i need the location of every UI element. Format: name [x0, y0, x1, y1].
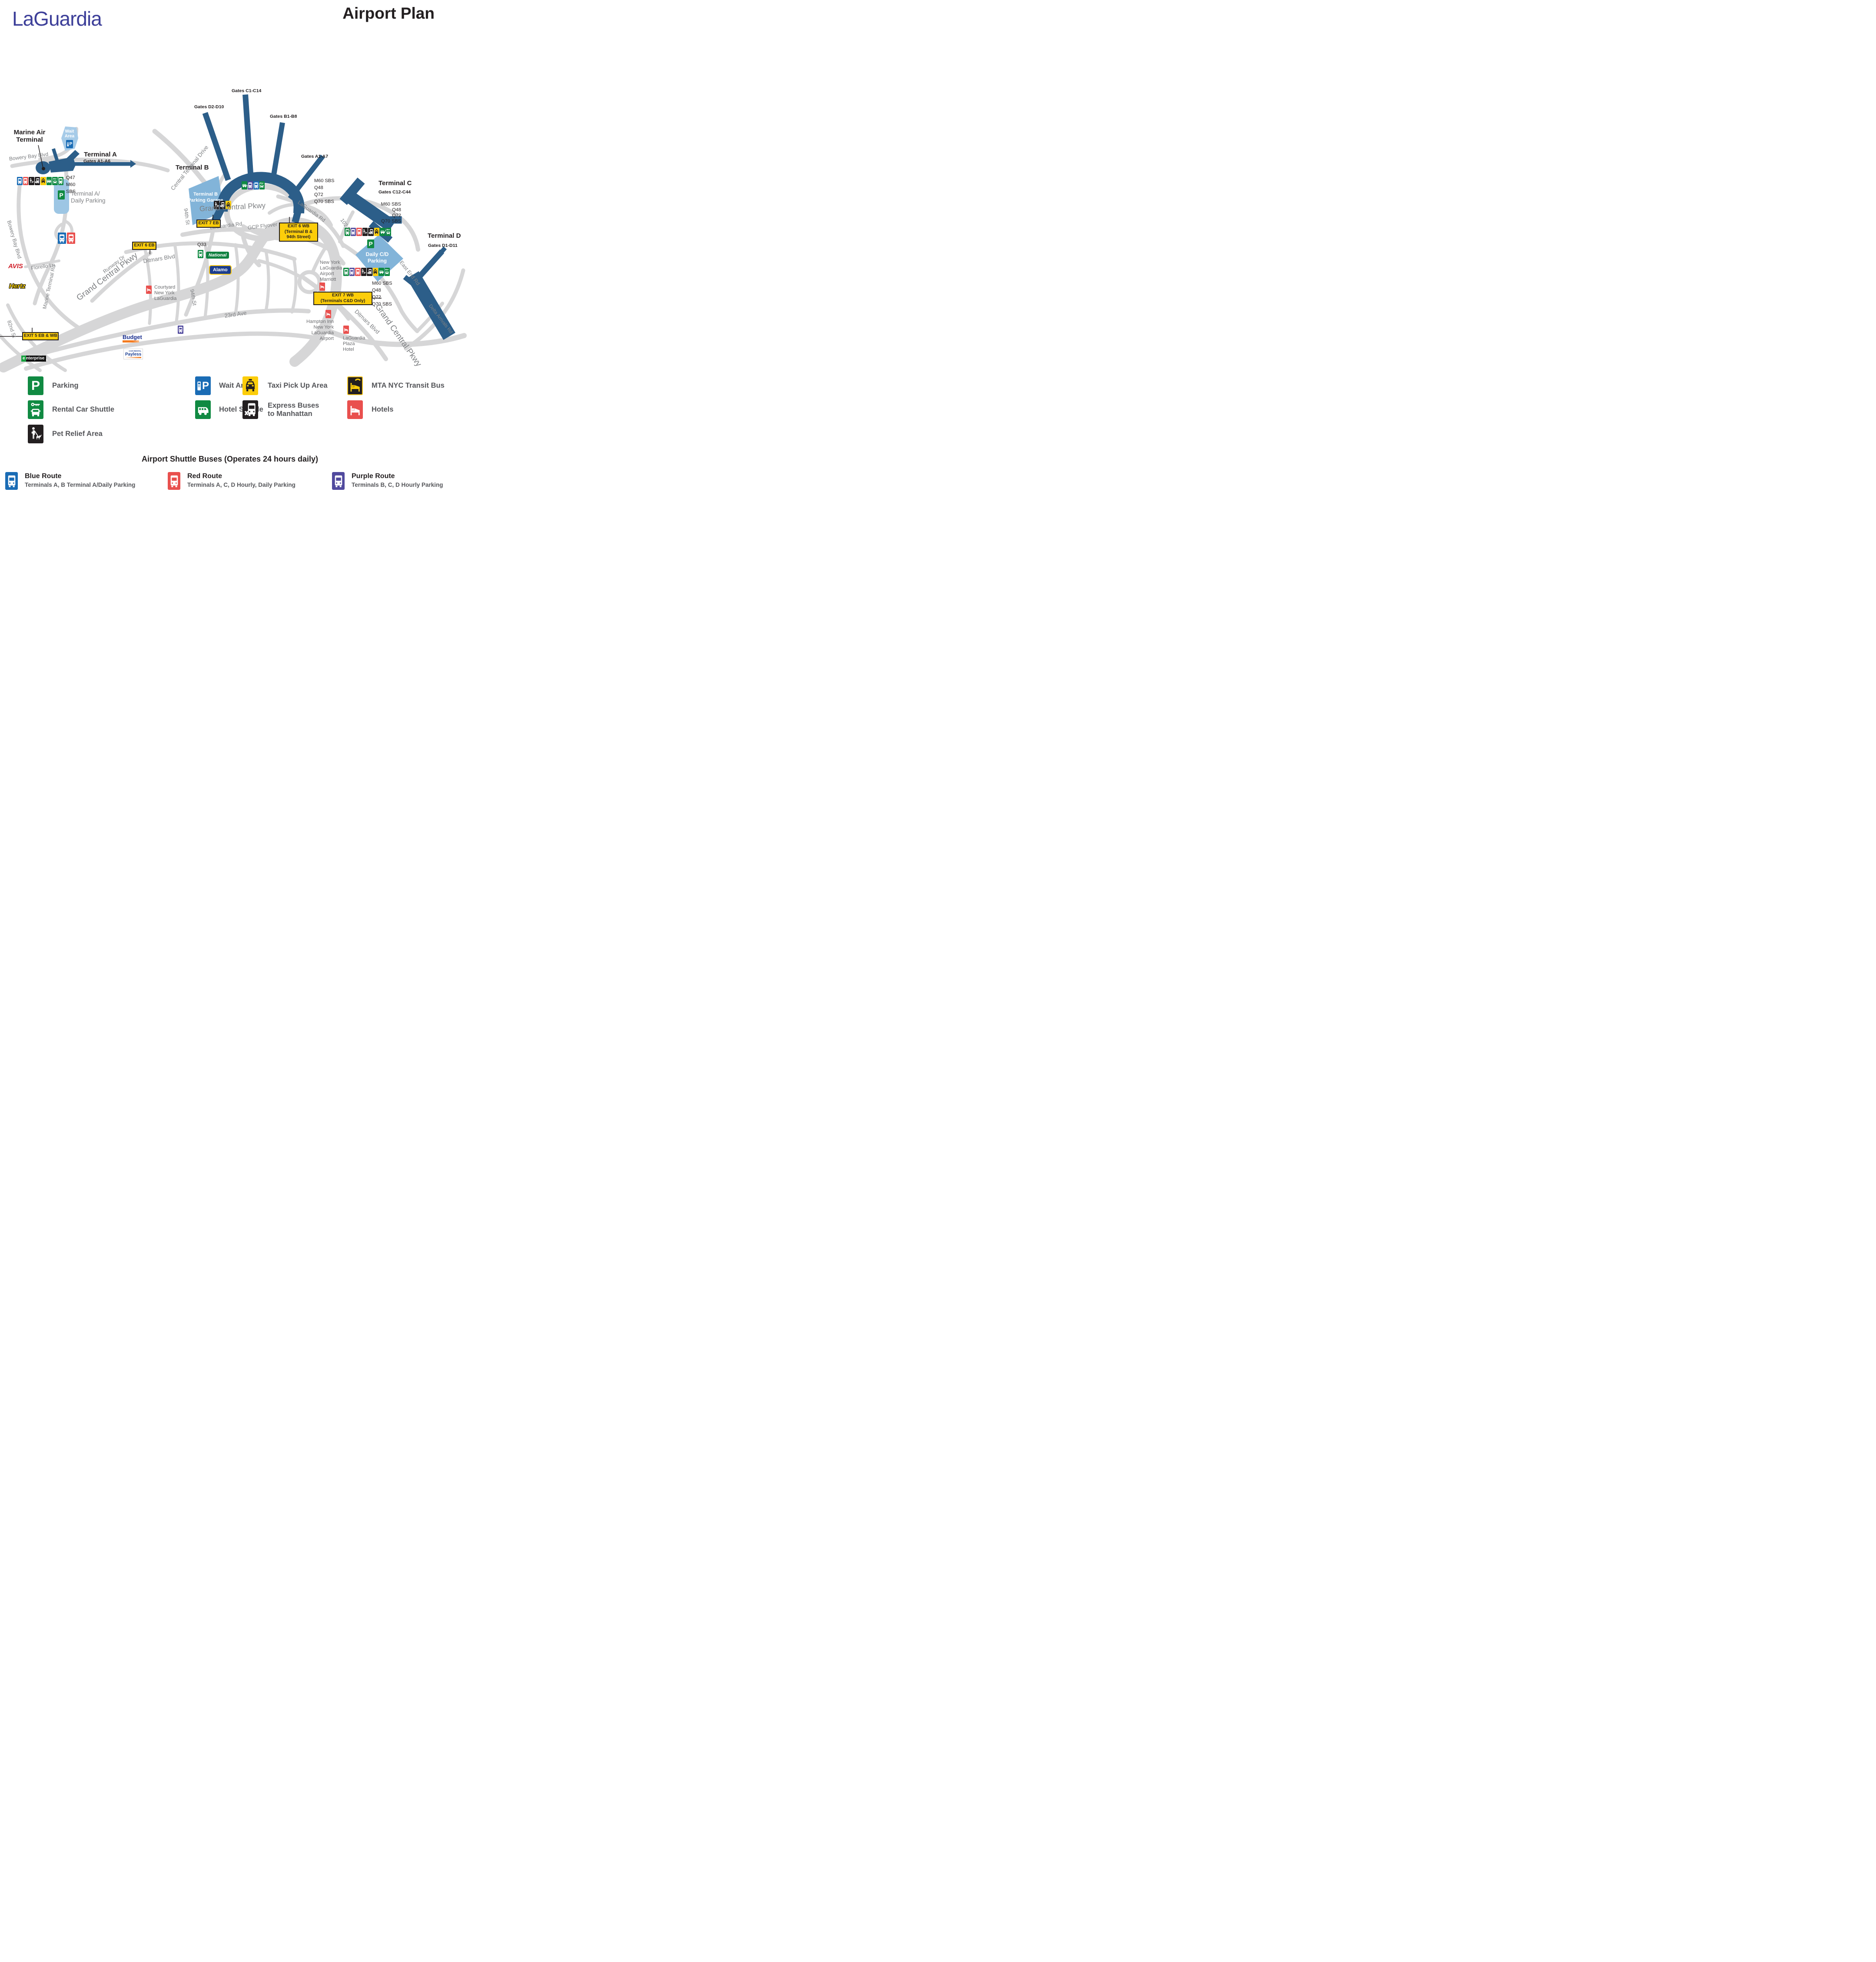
wait-area-icon: P [66, 140, 73, 148]
taxi-icon [373, 268, 379, 276]
blue-route-icon [5, 472, 18, 490]
legend-rental-car-icon [28, 400, 43, 419]
courtyard-hotel-icon [146, 286, 152, 294]
map-graphics [0, 0, 469, 491]
taxi-icon [374, 228, 380, 236]
exit-6-eb-sign: EXIT 6 EB [132, 242, 156, 250]
exit-6-wb-sign: EXIT 6 WB (Terminal B & 94th Street) [279, 223, 318, 242]
purple-route-name: Purple Route [352, 472, 395, 480]
rental-car-shuttle-icon [385, 268, 390, 276]
exit-5-sign: EXIT 5 EB & WB [22, 332, 59, 340]
alamo-logo: Alamo [209, 265, 232, 275]
blue-route-desc: Terminals A, B Terminal A/Daily Parking [25, 482, 135, 488]
blue-route-bus-icon [58, 233, 66, 244]
legend-parking-label: Parking [52, 382, 79, 390]
terminal-b-gates-b: Gates B1-B8 [270, 114, 297, 119]
terminal-b-gates-c: Gates C1-C14 [232, 88, 261, 93]
purple-route-bus-icon [248, 181, 253, 190]
express-bus-icon [368, 228, 374, 236]
legend-wait-area-icon: P [195, 376, 211, 395]
terminal-a-label: Terminal A [84, 151, 117, 158]
marine-air-dot [42, 167, 45, 170]
exit-7-wb-sign: EXIT 7 WB (Terminals C&D Only) [313, 292, 372, 305]
legend-mta-bus-icon [347, 376, 363, 395]
q33-bus-stop-icon [198, 250, 203, 258]
terminal-a-gates: Gates A1-A6 [83, 159, 110, 164]
terminal-d-gates: Gates D1-D11 [428, 243, 458, 248]
marine-air-terminal-label: Marine Air Terminal [6, 129, 53, 143]
terminal-b-gates-d: Gates D2-D10 [194, 104, 224, 110]
terminal-c-bus-routes: M60 SBS Q48 Q72 Q70 SBS [369, 202, 401, 224]
airport-plan-page: LaGuardia Airport Plan Marine Air Termin… [0, 0, 469, 491]
budget-swoosh [123, 340, 139, 343]
avis-logo: AVIS [8, 263, 23, 270]
exit-7-eb-sign: EXIT 7 EB [196, 219, 221, 228]
terminal-c-label: Terminal C [379, 180, 412, 187]
terminal-cd-lower-icon-strip [343, 268, 390, 276]
red-route-name: Red Route [187, 472, 222, 480]
blue-route-name: Blue Route [25, 472, 61, 480]
terminal-b-icon-strip [242, 181, 265, 190]
red-route-bus-icon [23, 177, 29, 185]
hotel-shuttle-icon [242, 181, 247, 190]
hotel-shuttle-icon [46, 177, 52, 185]
hertz-logo: Hertz [9, 283, 26, 290]
red-route-bus-icon [67, 233, 75, 244]
legend-taxi-icon [242, 376, 258, 395]
legend-hotel-shuttle-icon [195, 400, 211, 419]
red-route-bus-icon [355, 268, 361, 276]
legend-express-bus-icon [242, 400, 258, 419]
green-bus-icon [343, 268, 349, 276]
pet-relief-icon [361, 268, 367, 276]
red-route-desc: Terminals A, C, D Hourly, Daily Parking [187, 482, 296, 488]
marriott-hotel-icon [319, 283, 325, 291]
purple-route-stop-icon [178, 326, 183, 334]
laguardia-logo: LaGuardia [12, 7, 102, 30]
rental-car-shuttle-icon [52, 177, 58, 185]
hotel-shuttle-icon [379, 268, 384, 276]
enterprise-logo: enterprise [21, 356, 46, 362]
express-bus-icon [367, 268, 372, 276]
hampton-hotel-label: Hampton Inn New York LaGuardia Airport [303, 319, 334, 342]
courtyard-hotel-label: Courtyard New York LaGuardia [154, 285, 176, 302]
shuttle-title: Airport Shuttle Buses (Operates 24 hours… [0, 455, 460, 464]
terminal-c-gates: Gates C12-C44 [379, 190, 411, 195]
red-route-icon [168, 472, 180, 490]
terminal-a-parking-icon: P [58, 190, 65, 200]
payless-swoosh [125, 357, 141, 358]
plaza-hotel-icon [343, 326, 349, 334]
page-title: Airport Plan [304, 4, 435, 23]
legend-pet-relief-icon [28, 425, 43, 443]
red-route-bus-icon [356, 228, 362, 236]
pet-relief-icon [29, 177, 34, 185]
legend-pet-relief-label: Pet Relief Area [52, 430, 103, 438]
national-logo: National [206, 252, 229, 259]
legend-taxi-label: Taxi Pick Up Area [268, 382, 328, 390]
terminal-d-label: Terminal D [428, 232, 461, 239]
rental-car-shuttle-icon [386, 228, 392, 236]
terminal-b-gates-a: Gates A1-A7 [301, 154, 328, 159]
marriott-hotel-label: New York LaGuardia Airport Marriott [320, 260, 342, 283]
legend-hotels-label: Hotels [372, 406, 393, 414]
terminal-a-parking-bus-stop [58, 233, 75, 244]
plaza-hotel-label: LaGuardia Plaza Hotel [343, 336, 365, 352]
blue-route-bus-icon [17, 177, 23, 185]
terminal-d-bus-routes: M60 SBS Q48 Q72 Q70 SBS [372, 280, 392, 308]
legend-express-bus-label: Express Buses to Manhattan [268, 402, 319, 418]
budget-logo: Budget [123, 334, 142, 343]
wait-area-label: Wait Area [62, 129, 77, 139]
purple-route-desc: Terminals B, C, D Hourly Parking [352, 482, 443, 488]
payless-logo: CAR RENTAL Payless [123, 349, 143, 359]
legend-rental-car-label: Rental Car Shuttle [52, 406, 114, 414]
daily-cd-parking-label: Daily C/D Parking [355, 251, 400, 264]
express-bus-icon [35, 177, 40, 185]
terminal-a-parking-label: Terminal A/ Daily Parking [71, 190, 106, 204]
purple-route-bus-icon [349, 268, 355, 276]
pet-relief-icon [362, 228, 368, 236]
rental-car-shuttle-icon [259, 181, 265, 190]
taxi-icon [40, 177, 46, 185]
daily-cd-parking-icon: P [367, 239, 374, 248]
terminal-a-icon-strip [17, 177, 63, 185]
green-bus-icon [58, 177, 64, 185]
terminal-b-bus-routes: M60 SBS Q48 Q72 Q70 SBS [314, 177, 334, 205]
enterprise-e: e [21, 356, 26, 362]
purple-route-icon [332, 472, 345, 490]
q33-label: Q33 [197, 241, 206, 248]
legend-parking-icon: P [28, 376, 43, 395]
hotel-shuttle-icon [380, 228, 385, 236]
hampton-hotel-icon [325, 310, 331, 318]
legend-hotels-icon [347, 400, 363, 419]
blue-route-bus-icon [253, 181, 259, 190]
legend-mta-bus-label: MTA NYC Transit Bus [372, 382, 445, 390]
